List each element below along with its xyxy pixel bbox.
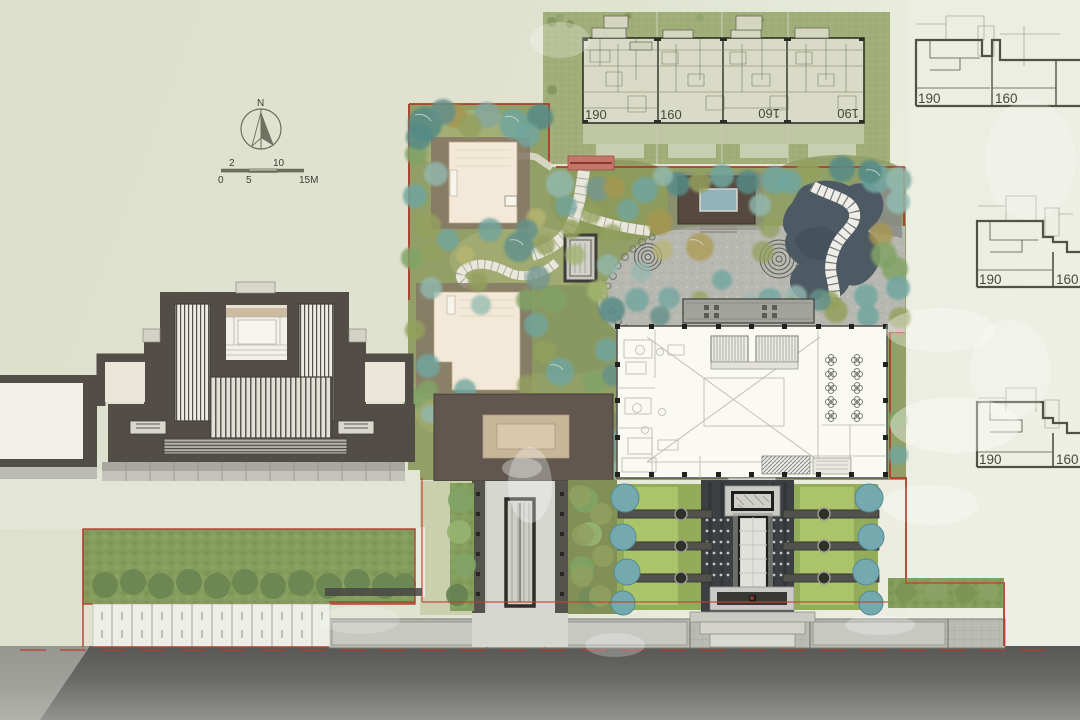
svg-text:0: 0 <box>218 175 224 186</box>
svg-text:5: 5 <box>246 175 252 186</box>
svg-text:10: 10 <box>273 158 285 169</box>
svg-text:N: N <box>257 98 264 109</box>
svg-text:15M: 15M <box>299 175 318 186</box>
svg-text:2: 2 <box>229 158 235 169</box>
